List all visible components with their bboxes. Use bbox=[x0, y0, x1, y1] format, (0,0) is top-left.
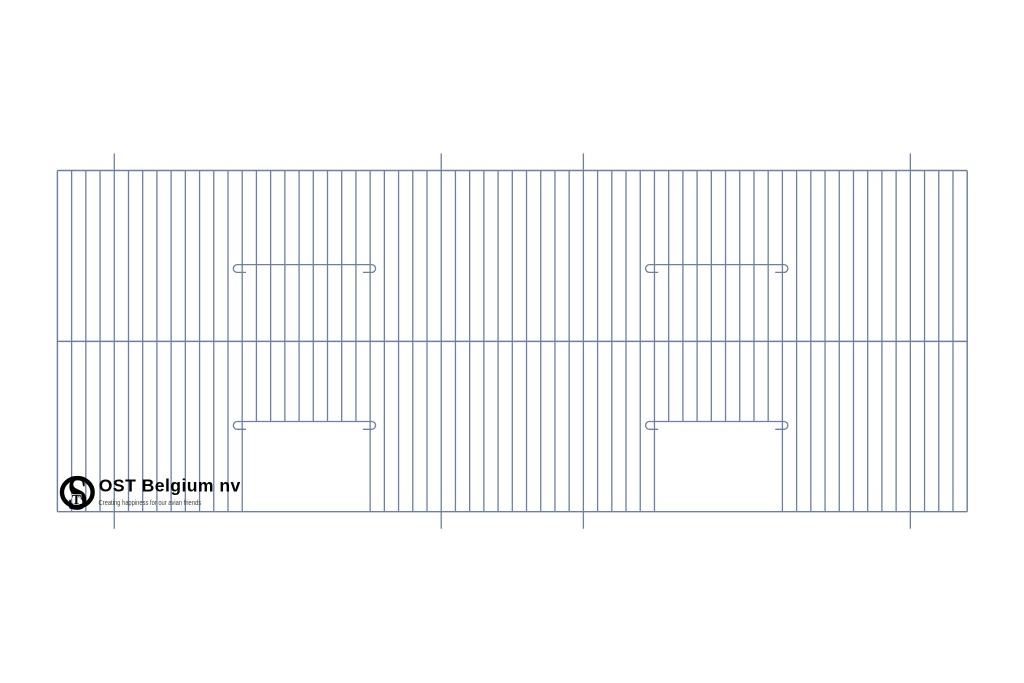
svg-text:OST Belgium nv: OST Belgium nv bbox=[99, 476, 241, 496]
svg-text:Creating happiness for our avi: Creating happiness for our avian friends bbox=[99, 500, 202, 507]
svg-text:T: T bbox=[72, 492, 81, 507]
